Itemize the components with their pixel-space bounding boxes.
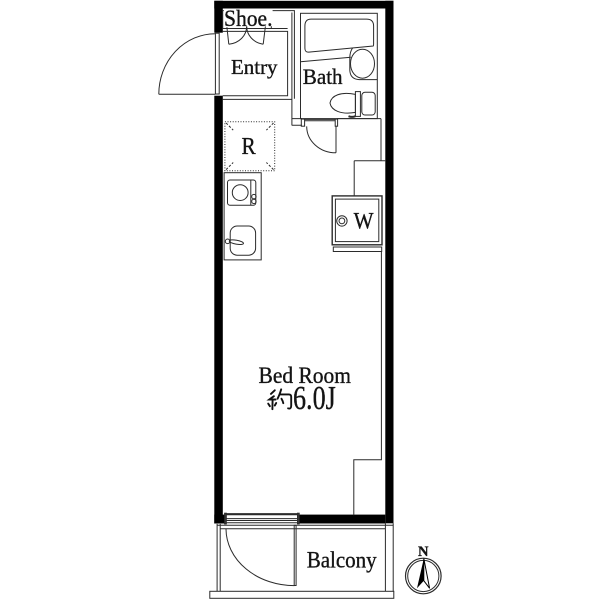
svg-text:Bath: Bath bbox=[303, 64, 343, 89]
svg-text:W: W bbox=[354, 209, 374, 234]
svg-text:Entry: Entry bbox=[231, 55, 278, 79]
svg-text:R: R bbox=[242, 134, 256, 160]
svg-text:6.0J: 6.0J bbox=[293, 380, 336, 417]
svg-text:Shoe.: Shoe. bbox=[224, 6, 273, 32]
svg-text:Balcony: Balcony bbox=[307, 548, 377, 573]
svg-text:N: N bbox=[418, 544, 429, 560]
